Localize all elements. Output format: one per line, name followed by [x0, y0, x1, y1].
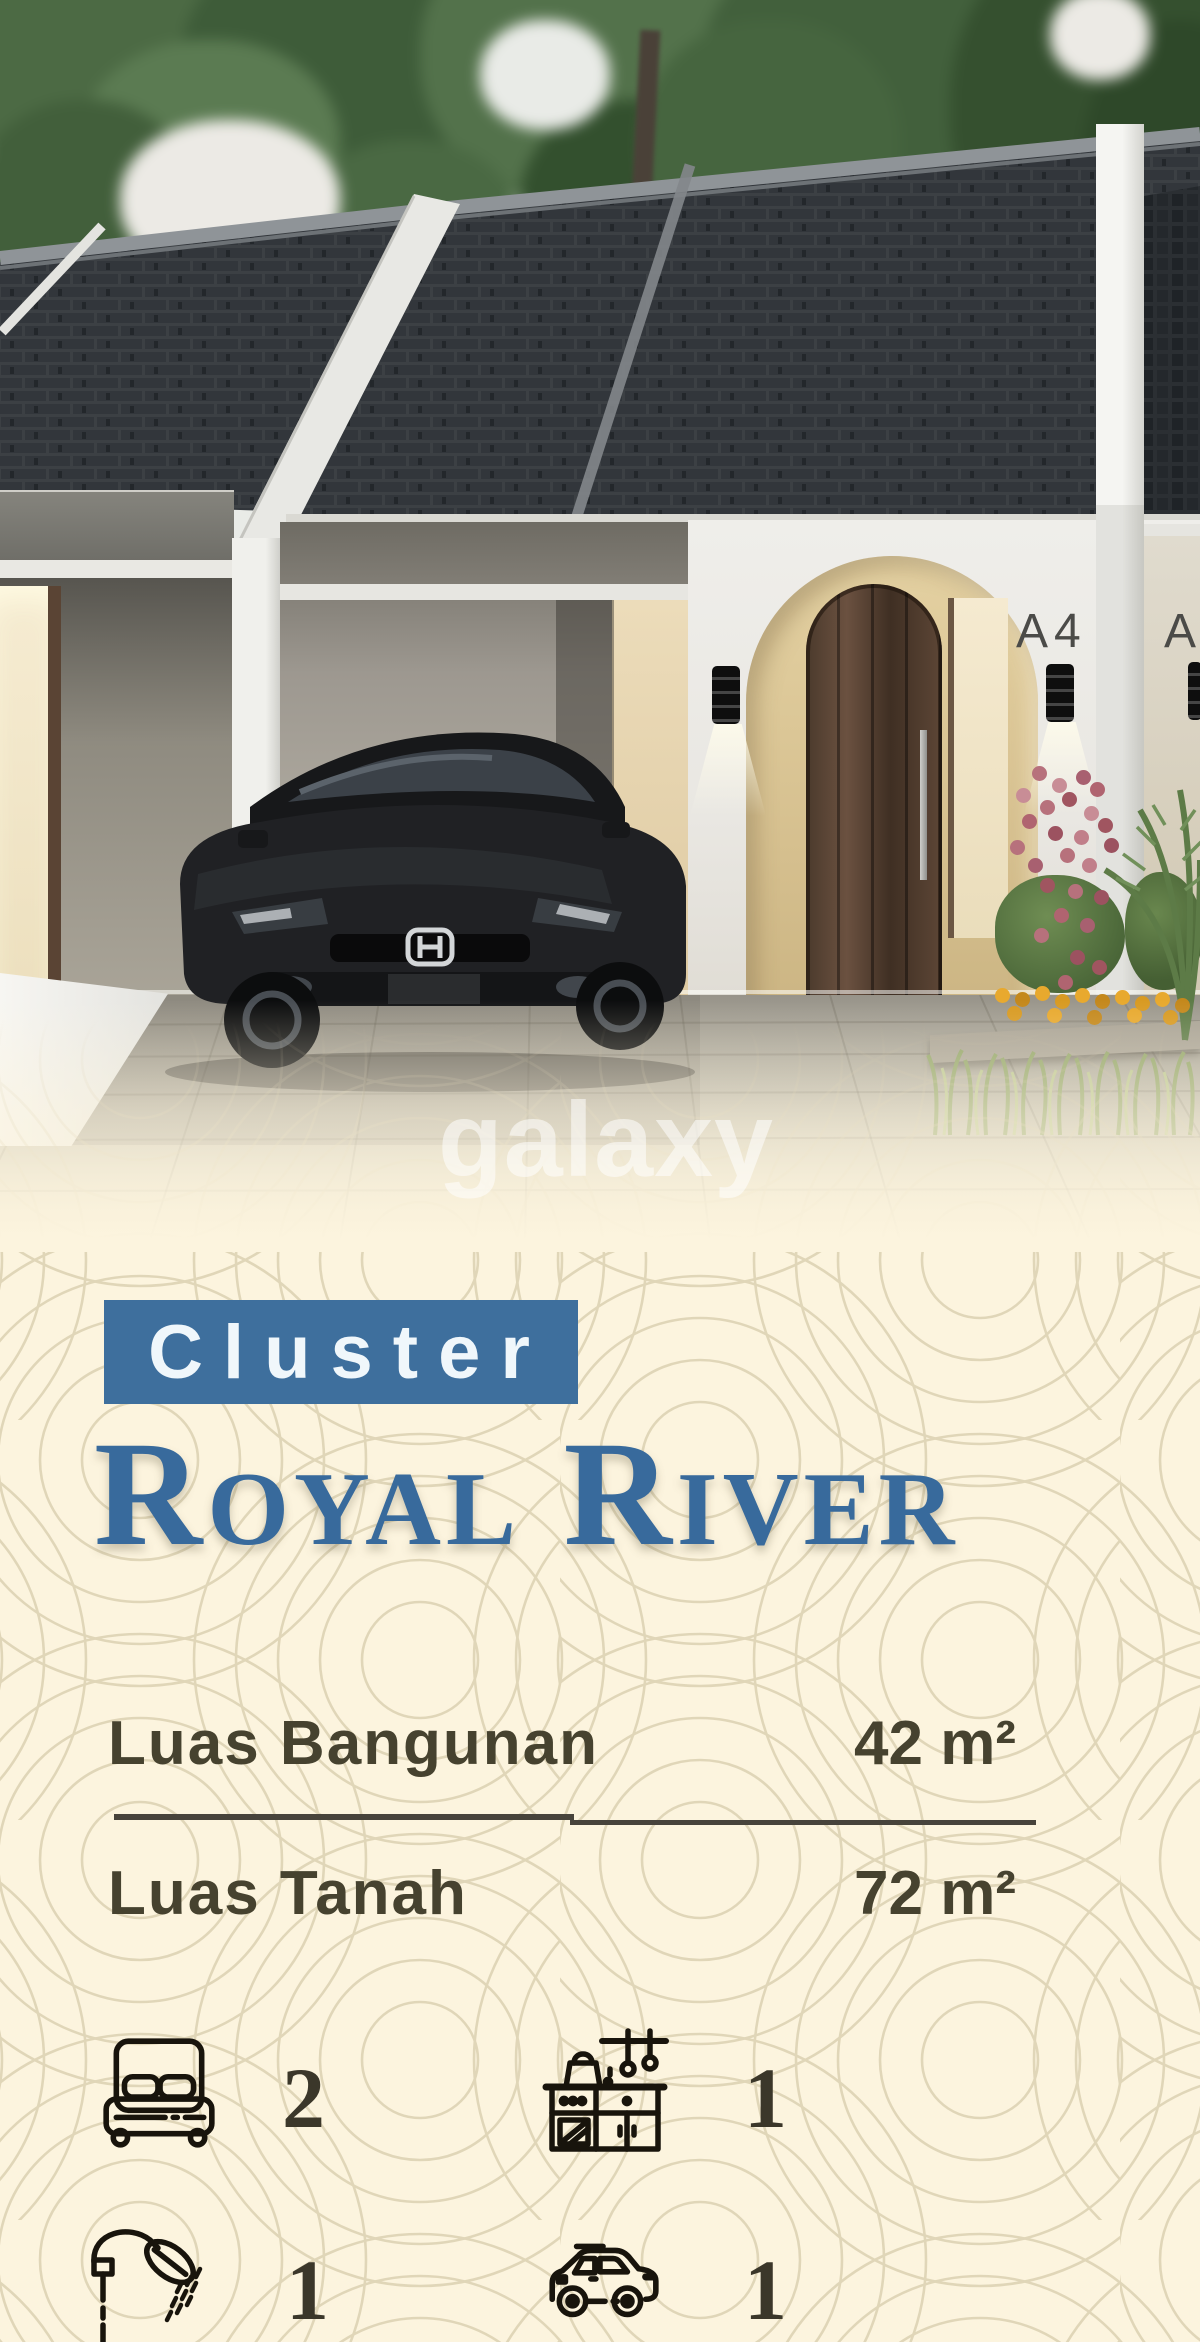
divider [570, 1820, 1036, 1825]
spec-label-building-area: Luas Bangunan [108, 1708, 599, 1779]
wall-lamp-icon [1188, 662, 1200, 720]
flyer-canvas: A4 A [0, 0, 1200, 2342]
door-handle [920, 730, 927, 880]
adjacent-unit-label: A [1164, 604, 1200, 659]
watermark: galaxy [438, 1080, 774, 1201]
door-sidelight [948, 598, 1008, 938]
adjacent-gutter [1144, 524, 1200, 536]
cluster-badge: Cluster [104, 1300, 578, 1404]
car-mirror [602, 822, 630, 838]
left-house-door [0, 586, 61, 1016]
divider [114, 1814, 574, 1820]
adjacent-roof [1144, 186, 1200, 530]
carport-icon [538, 2238, 666, 2330]
a4-carport-beam [280, 584, 690, 600]
left-house-fascia [0, 492, 234, 564]
kitchen-count: 1 [744, 2048, 787, 2148]
shower-icon [78, 2222, 220, 2342]
cluster-badge-label: Cluster [132, 1309, 550, 1396]
page-title: Royal River [94, 1416, 959, 1574]
bathroom-count: 1 [286, 2240, 329, 2340]
bed-icon [96, 2036, 222, 2150]
flowering-shrub [1040, 800, 1055, 815]
unit-label: A4 [1016, 604, 1087, 659]
spec-value-building-area: 42 m² [716, 1708, 1016, 1779]
left-house-trim [0, 560, 234, 578]
spec-value-land-area: 72 m² [716, 1858, 1016, 1929]
main-roof [286, 134, 1200, 538]
car-mirror [238, 830, 268, 848]
carport-count: 1 [744, 2240, 787, 2340]
bedroom-count: 2 [282, 2048, 325, 2148]
kitchen-icon [540, 2026, 670, 2156]
spec-label-land-area: Luas Tanah [108, 1858, 468, 1929]
wall-lamp-icon [1046, 664, 1074, 722]
